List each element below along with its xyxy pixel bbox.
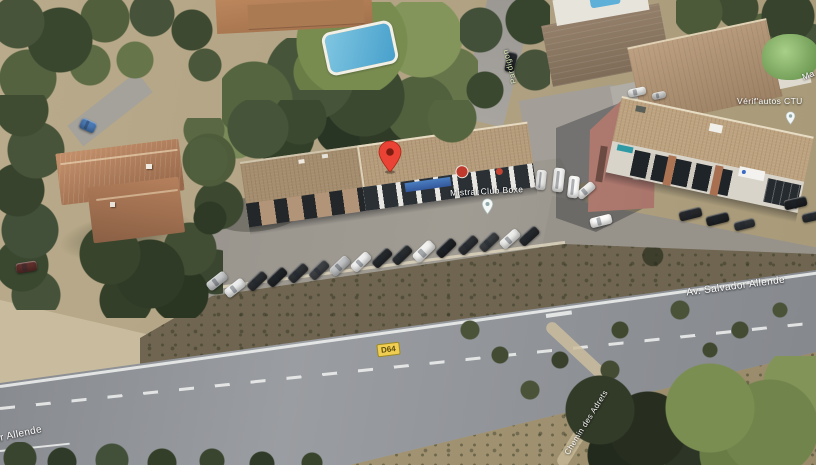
place-pin-right-icon[interactable] <box>785 111 796 125</box>
vehicle <box>412 239 437 264</box>
route-badge-d64: D64 <box>376 342 400 358</box>
vehicle <box>329 255 352 277</box>
vehicle <box>78 117 97 134</box>
vehicle <box>733 218 756 232</box>
vehicle <box>678 206 703 221</box>
vehicle <box>435 237 458 259</box>
vehicle <box>552 167 565 192</box>
vehicle <box>478 231 501 253</box>
vehicle <box>246 270 269 292</box>
vehicle <box>371 247 394 269</box>
vehicle <box>567 175 580 198</box>
vehicle <box>705 211 730 226</box>
vehicle-layer <box>0 0 816 465</box>
vehicle <box>627 86 646 98</box>
vehicle <box>589 213 613 228</box>
vehicle <box>801 210 816 223</box>
dropped-pin-icon[interactable] <box>376 140 404 174</box>
vehicle <box>308 259 331 281</box>
vehicle <box>651 91 666 101</box>
vehicle <box>15 260 37 273</box>
vehicle <box>223 277 246 298</box>
place-pin-center-icon[interactable] <box>481 198 494 215</box>
vehicle <box>783 196 808 211</box>
vehicle <box>457 234 480 256</box>
vehicle <box>266 266 289 288</box>
vehicle <box>350 251 373 273</box>
place-label-right[interactable]: Vérif'autos CTU <box>737 96 803 106</box>
vehicle <box>517 225 540 247</box>
satellite-map-canvas[interactable]: D64 Av. Salvador Allende or Allende Mist… <box>0 0 816 465</box>
vehicle <box>535 170 547 191</box>
vehicle <box>391 244 414 266</box>
vehicle <box>287 262 310 284</box>
